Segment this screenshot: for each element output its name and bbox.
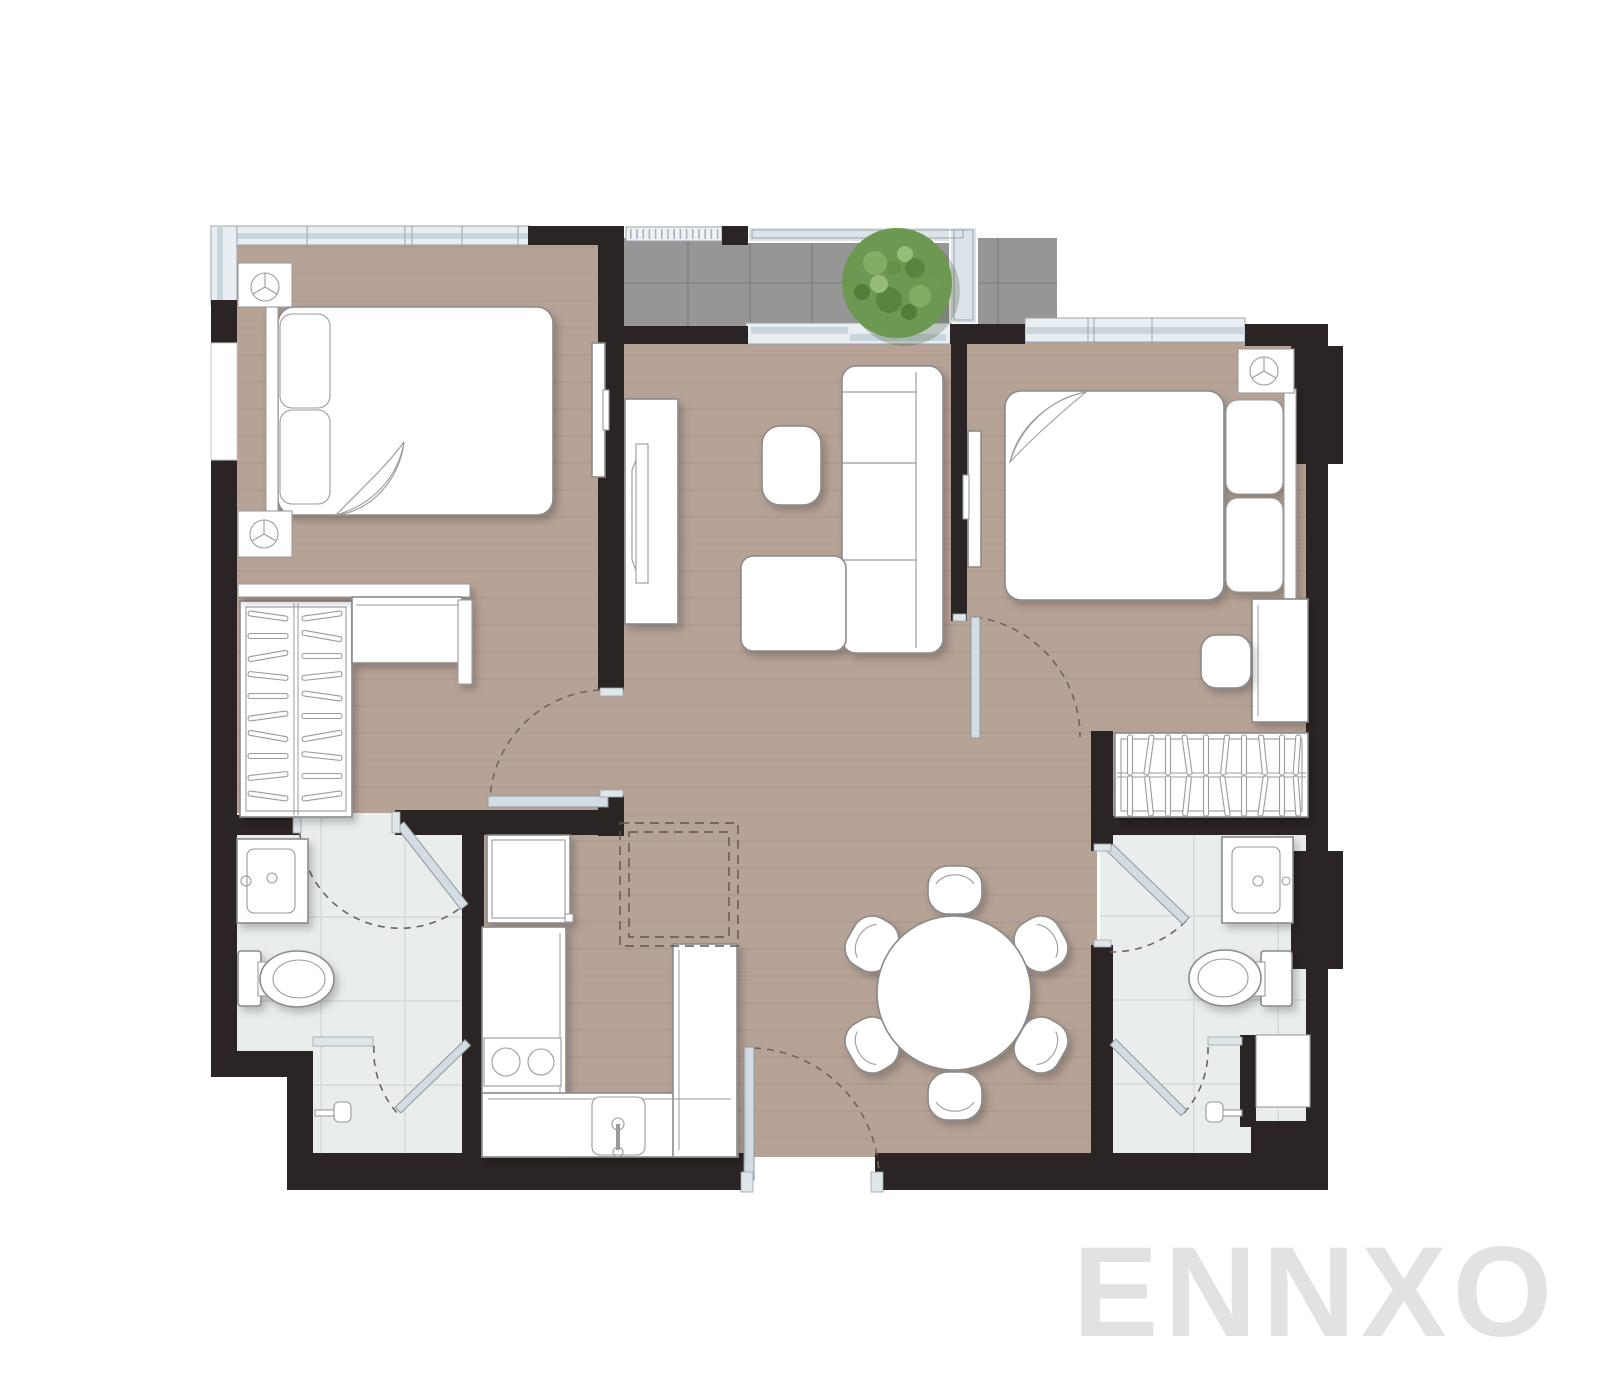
wall-niche bbox=[211, 343, 237, 460]
nightstand-1b bbox=[238, 511, 292, 557]
wardrobe-1[interactable] bbox=[240, 601, 352, 817]
watermark: ENNXO bbox=[1073, 1221, 1558, 1364]
bedroom1-door[interactable] bbox=[488, 796, 608, 807]
nightstand-1a bbox=[238, 263, 292, 307]
balcony-floor bbox=[623, 238, 1057, 326]
bed-1 bbox=[266, 303, 553, 519]
shower-niche-shelf bbox=[1256, 1035, 1310, 1107]
wardrobe-2[interactable] bbox=[1115, 733, 1308, 817]
balcony-ac-louver bbox=[626, 227, 722, 241]
side-table bbox=[762, 426, 821, 505]
towel-bar-1 bbox=[313, 1037, 373, 1046]
vanity-sink-1 bbox=[237, 839, 308, 923]
towel-bar-2 bbox=[1208, 1037, 1242, 1045]
desk-2 bbox=[1252, 599, 1308, 722]
nightstand-2 bbox=[1238, 349, 1294, 393]
toilet-2 bbox=[1189, 950, 1292, 1006]
refrigerator[interactable] bbox=[487, 835, 573, 923]
dining-chair bbox=[928, 1072, 982, 1120]
dining-chair bbox=[928, 866, 982, 914]
kitchen-sink bbox=[592, 1097, 645, 1157]
cooktop bbox=[484, 1038, 561, 1086]
vanity-sink-2 bbox=[1222, 837, 1293, 923]
floor-plan-page: ENNXO bbox=[0, 0, 1600, 1376]
tv-console bbox=[625, 399, 678, 624]
bedroom2-window bbox=[1025, 318, 1245, 342]
bedroom2-door[interactable] bbox=[971, 617, 980, 738]
stool-2 bbox=[1201, 635, 1251, 688]
toilet-1 bbox=[238, 951, 334, 1007]
entrance-door[interactable] bbox=[744, 1047, 754, 1180]
floor-plan-drawing: ENNXO bbox=[0, 0, 1600, 1376]
dining-table bbox=[877, 916, 1031, 1070]
sofa-ottoman bbox=[741, 556, 846, 651]
